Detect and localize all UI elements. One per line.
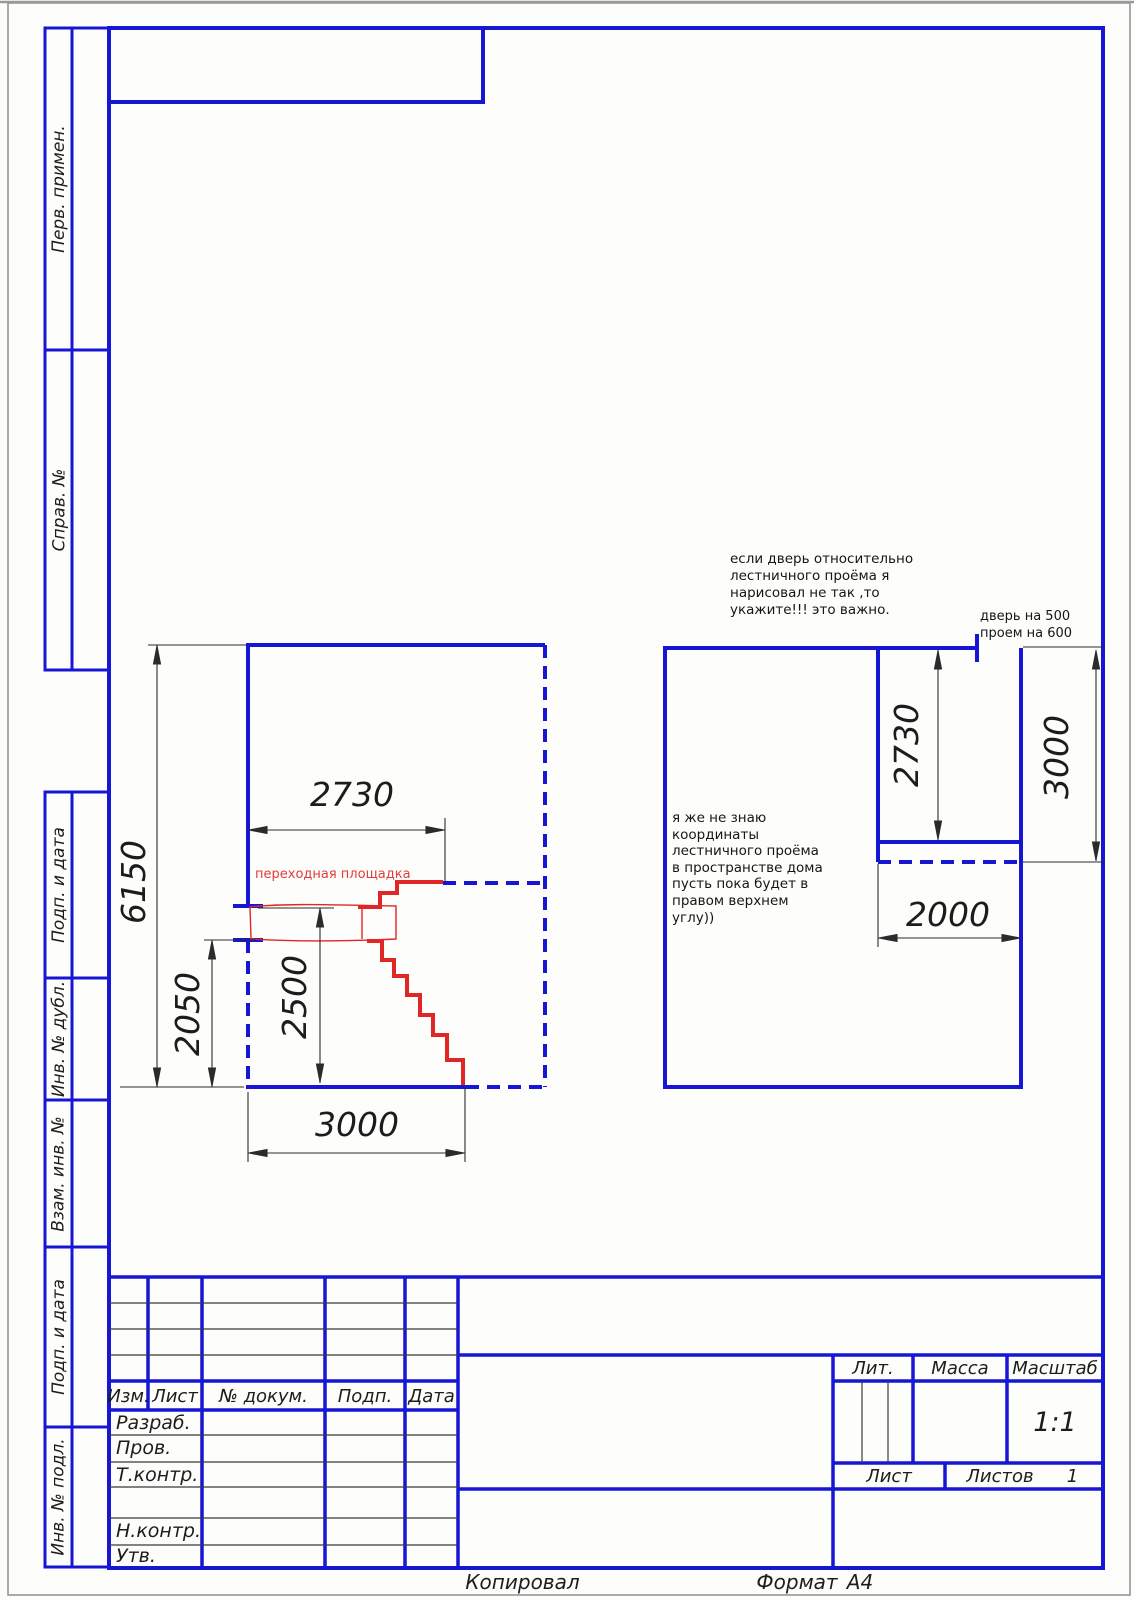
margin-label: Справ. № bbox=[49, 469, 69, 552]
coords-note: я же не знаю координаты лестничного проё… bbox=[672, 810, 823, 926]
note-line: дверь на 500 bbox=[980, 609, 1072, 626]
format-value: А4 bbox=[835, 1570, 885, 1594]
note-line: в пространстве дома bbox=[672, 860, 823, 877]
note-line: углу)) bbox=[672, 910, 823, 927]
door-position-note: если дверь относительно лестничного проё… bbox=[730, 551, 913, 619]
tb-row-prov: Пров. bbox=[111, 1436, 206, 1459]
upper-flight bbox=[358, 882, 443, 907]
margin-label: Перв. примен. bbox=[49, 125, 69, 253]
tb-row-utv: Утв. bbox=[111, 1545, 206, 1567]
note-line: укажите!!! это важно. bbox=[730, 602, 913, 619]
note-line: правом верхнем bbox=[672, 893, 823, 910]
margin-box-sprav-no: Справ. № bbox=[45, 350, 73, 670]
note-line: пусть пока будет в bbox=[672, 876, 823, 893]
note-line: если дверь относительно bbox=[730, 551, 913, 568]
note-line: координаты bbox=[672, 827, 823, 844]
margin-box-podp-data-1: Подп. и дата bbox=[45, 792, 73, 978]
margin-box-inv-podl: Инв. № подл. bbox=[45, 1427, 73, 1567]
margin-box-inv-dubl: Инв. № дубл. bbox=[45, 978, 73, 1100]
tb-header-podp: Подп. bbox=[325, 1383, 405, 1409]
door-size-note: дверь на 500 проем на 600 bbox=[980, 609, 1072, 642]
dim-left-stair: 2500 bbox=[275, 955, 314, 1039]
tb-sheet-label: Лист bbox=[833, 1464, 945, 1489]
tb-row-blank bbox=[111, 1489, 206, 1512]
drawing-sheet: 6150 2730 2050 2500 3000 2730 3000 bbox=[0, 0, 1134, 1600]
tb-scale-value: 1:1 bbox=[1007, 1400, 1103, 1445]
tb-row-razrab: Разраб. bbox=[111, 1411, 206, 1434]
tb-row-tkontr: Т.контр. bbox=[111, 1463, 206, 1486]
margin-box-perv-primen: Перв. примен. bbox=[45, 28, 73, 350]
dim-left-lower: 2050 bbox=[168, 972, 207, 1056]
tb-header-list: Лист bbox=[148, 1383, 202, 1409]
dim-left-height: 6150 bbox=[114, 840, 153, 924]
tb-sheets-value: 1 bbox=[1050, 1464, 1095, 1489]
tb-row-nkontr: Н.контр. bbox=[111, 1519, 206, 1543]
dim-left-opening-width: 2730 bbox=[310, 775, 394, 814]
note-line: нарисовал не так ,то bbox=[730, 585, 913, 602]
lower-flight bbox=[367, 941, 463, 1085]
note-line: лестничного проёма я bbox=[730, 568, 913, 585]
margin-label: Инв. № подл. bbox=[49, 1438, 69, 1555]
margin-box-vzam-inv: Взам. инв. № bbox=[45, 1100, 73, 1247]
margin-label: Взам. инв. № bbox=[49, 1116, 69, 1231]
margin-box-podp-data-2: Подп. и дата bbox=[45, 1247, 73, 1427]
landing-label: переходная площадка bbox=[255, 867, 411, 882]
tb-header-data: Дата bbox=[405, 1383, 458, 1409]
tb-header-izm: Изм. bbox=[109, 1383, 148, 1409]
dim-right-opening-width: 2000 bbox=[906, 895, 990, 934]
tb-sheets-label: Листов bbox=[945, 1464, 1055, 1489]
margin-label: Инв. № дубл. bbox=[49, 981, 69, 1097]
tb-scale-label: Масштаб bbox=[1007, 1357, 1103, 1380]
dim-right-opening-height: 2730 bbox=[887, 703, 926, 787]
format-label: Формат bbox=[752, 1570, 842, 1594]
dimensions: 6150 2730 2050 2500 3000 2730 3000 bbox=[114, 645, 1105, 1162]
note-line: я же не знаю bbox=[672, 810, 823, 827]
dim-right-wall: 3000 bbox=[1037, 715, 1076, 799]
titleblock-grid bbox=[109, 1277, 1103, 1568]
tb-header-docnum: № докум. bbox=[202, 1383, 325, 1409]
copied-label: Копировал bbox=[450, 1570, 595, 1594]
margin-label: Подп. и дата bbox=[49, 1279, 69, 1395]
tb-mass-label: Масса bbox=[913, 1357, 1007, 1380]
tb-lit-label: Лит. bbox=[833, 1357, 913, 1380]
margin-label: Подп. и дата bbox=[49, 827, 69, 943]
dim-left-width: 3000 bbox=[315, 1105, 399, 1144]
note-line: проем на 600 bbox=[980, 626, 1072, 643]
note-line: лестничного проёма bbox=[672, 843, 823, 860]
